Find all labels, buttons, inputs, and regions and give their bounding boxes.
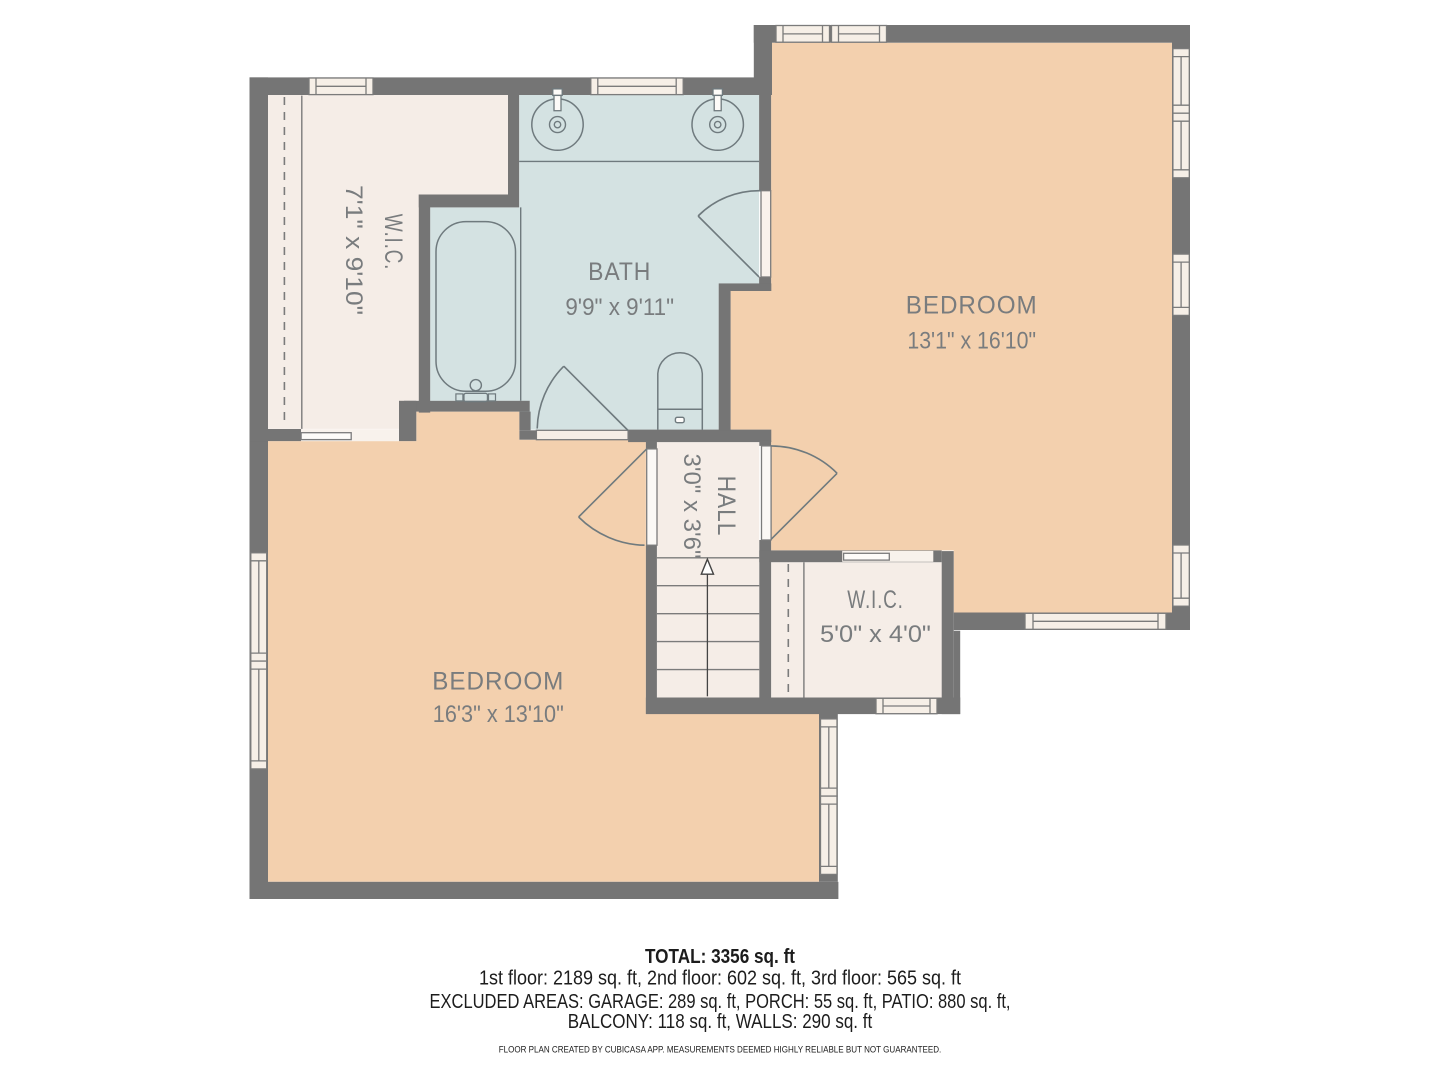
svg-text:9'9" x 9'11": 9'9" x 9'11" <box>565 294 674 321</box>
svg-text:16'3" x 13'10": 16'3" x 13'10" <box>433 701 564 728</box>
svg-text:7'1" x 9'10": 7'1" x 9'10" <box>340 185 367 315</box>
svg-text:3'0" x 3'6": 3'0" x 3'6" <box>678 454 705 559</box>
svg-text:BEDROOM: BEDROOM <box>906 292 1038 320</box>
svg-text:TOTAL: 3356 sq. ft: TOTAL: 3356 sq. ft <box>645 945 795 968</box>
svg-text:W.I.C.: W.I.C. <box>847 586 903 614</box>
svg-text:13'1" x 16'10": 13'1" x 16'10" <box>907 328 1036 355</box>
svg-text:BALCONY: 118 sq. ft, WALLS: 29: BALCONY: 118 sq. ft, WALLS: 290 sq. ft <box>568 1010 873 1033</box>
svg-text:BATH: BATH <box>588 258 651 286</box>
svg-text:W.I.C.: W.I.C. <box>379 214 407 271</box>
svg-text:HALL: HALL <box>712 476 740 537</box>
svg-text:FLOOR PLAN CREATED BY CUBICASA: FLOOR PLAN CREATED BY CUBICASA APP. MEAS… <box>499 1045 942 1056</box>
svg-text:1st floor: 2189 sq. ft, 2nd fl: 1st floor: 2189 sq. ft, 2nd floor: 602 s… <box>479 967 961 990</box>
svg-text:5'0" x 4'0": 5'0" x 4'0" <box>820 621 931 648</box>
svg-text:BEDROOM: BEDROOM <box>432 667 564 695</box>
